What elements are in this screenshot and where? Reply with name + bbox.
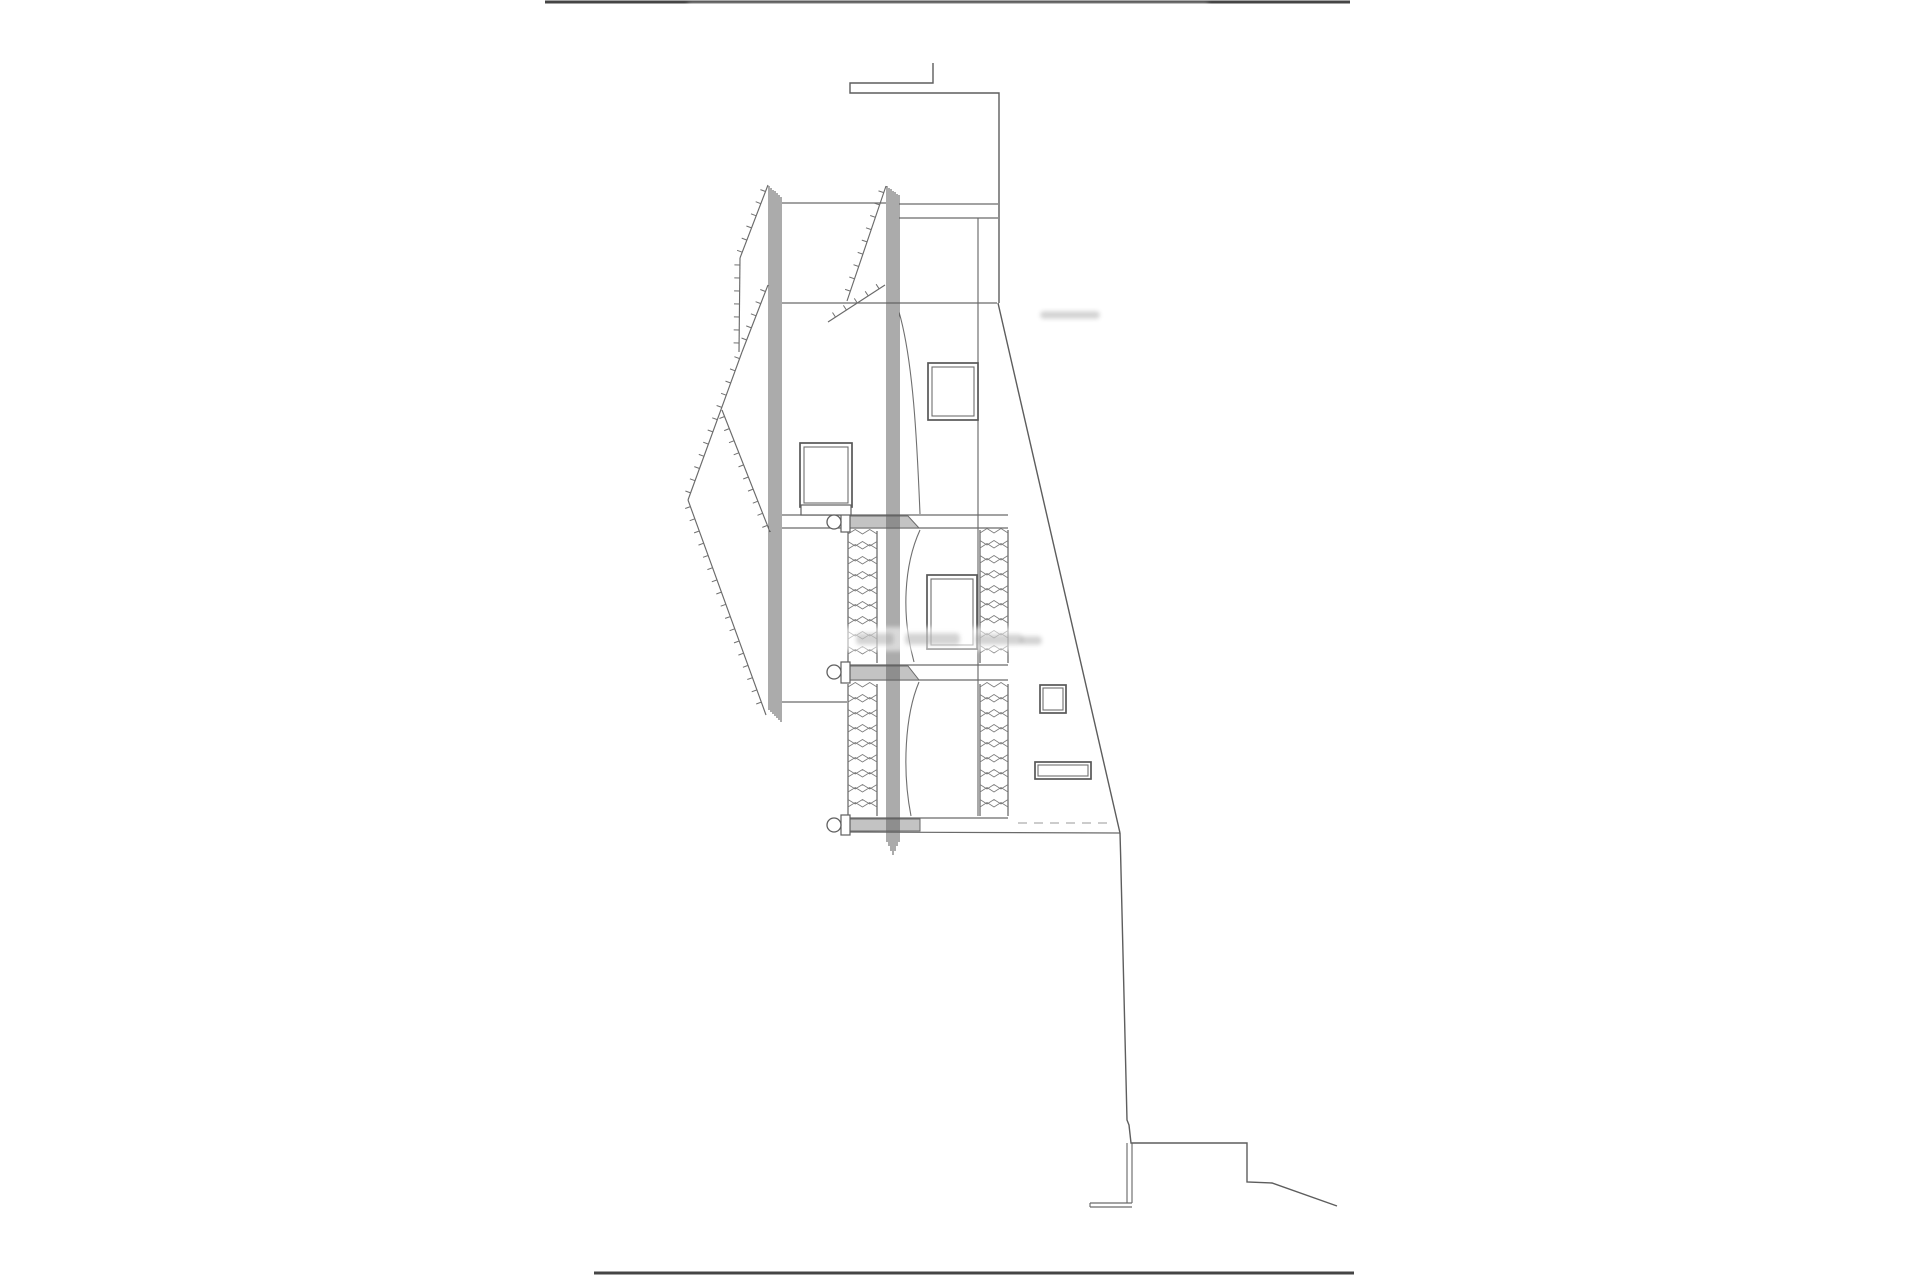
floor-beam-block <box>850 819 920 831</box>
terrain-profile <box>1120 833 1337 1206</box>
mid-window <box>800 443 852 507</box>
roof-tick-marks <box>845 191 884 291</box>
insulation-zigzag-hatch <box>980 683 1008 808</box>
roof-tick-marks <box>719 417 767 528</box>
roof-edge-line <box>739 258 740 352</box>
bolt-circles <box>827 515 841 832</box>
watermark-blob <box>1020 636 1042 645</box>
roof-edge-line <box>740 185 768 258</box>
beam-end-block <box>841 815 850 835</box>
roof-edge-line <box>688 352 742 500</box>
construction-lines <box>782 203 1132 1207</box>
elevation-drawing <box>0 0 1920 1280</box>
watermark-blob <box>975 634 1023 645</box>
roof-tick-marks <box>742 290 766 341</box>
upper-window <box>928 363 978 420</box>
windows <box>800 363 1091 779</box>
roof-edge-line <box>688 500 766 715</box>
roof-tick-marks <box>685 357 739 493</box>
beam-end-blocks <box>801 505 851 835</box>
roof-edge-line <box>742 285 768 352</box>
bolt-circle <box>827 818 841 832</box>
insulation-zigzag-hatch <box>848 683 877 808</box>
bolt-circle <box>827 515 841 529</box>
floor-beam-block <box>850 516 919 528</box>
brace-curve-upper <box>899 312 920 514</box>
roof-edge-line <box>722 410 770 532</box>
beam-end-block <box>841 662 850 683</box>
watermark-blob <box>905 633 960 645</box>
scanned-elevation-sheet <box>0 0 1920 1280</box>
watermark <box>688 3 1208 651</box>
roof-tick-marks <box>737 190 765 253</box>
brace-curve-lower <box>906 682 919 816</box>
right-wall-slope <box>998 303 1120 833</box>
watermark-wash <box>688 3 1208 9</box>
watermark-blob <box>1040 311 1100 319</box>
floor-beam-block <box>850 666 919 680</box>
watermark-blob <box>856 633 894 645</box>
parapet-step-outline <box>850 63 999 303</box>
drawing-line <box>842 832 1120 833</box>
roof-tick-marks <box>833 284 880 317</box>
roof-tick-marks <box>685 507 761 704</box>
small-square-window <box>1040 685 1066 713</box>
beam-end-block <box>801 505 851 515</box>
bolt-circle <box>827 665 841 679</box>
brace-curves <box>899 312 920 816</box>
